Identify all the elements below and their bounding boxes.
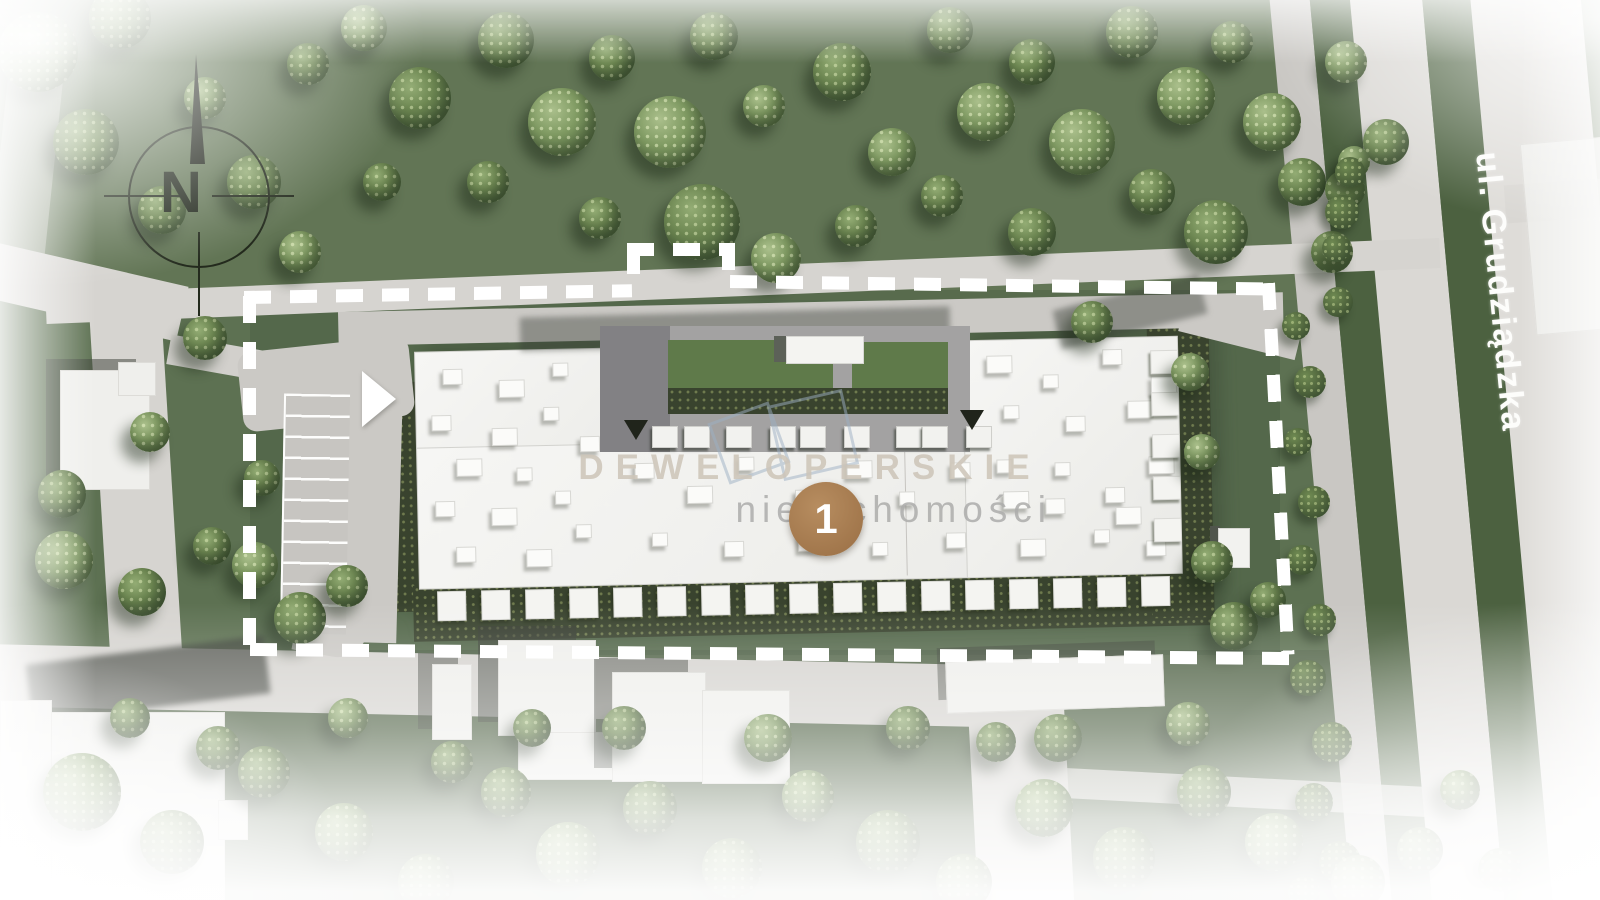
plot-boundary-segment	[627, 243, 733, 256]
compass: N	[120, 118, 278, 276]
plot-boundary-segment	[250, 643, 1290, 665]
compass-label: N	[160, 164, 202, 222]
building-marker-label: 1	[814, 495, 837, 543]
plot-boundary-segment	[1262, 283, 1294, 655]
site-plan-canvas: DEWELOPERSKIE nieruchomości 1 N ul. Grud…	[0, 0, 1600, 900]
plot-boundary-segment	[243, 296, 256, 646]
compass-tick	[198, 232, 200, 316]
plot-boundary-segment	[730, 275, 1270, 296]
plot-boundary-segment	[244, 284, 632, 304]
plot-boundary-segment	[722, 243, 735, 279]
compass-tick	[212, 195, 294, 197]
building-marker-1[interactable]: 1	[789, 482, 863, 556]
